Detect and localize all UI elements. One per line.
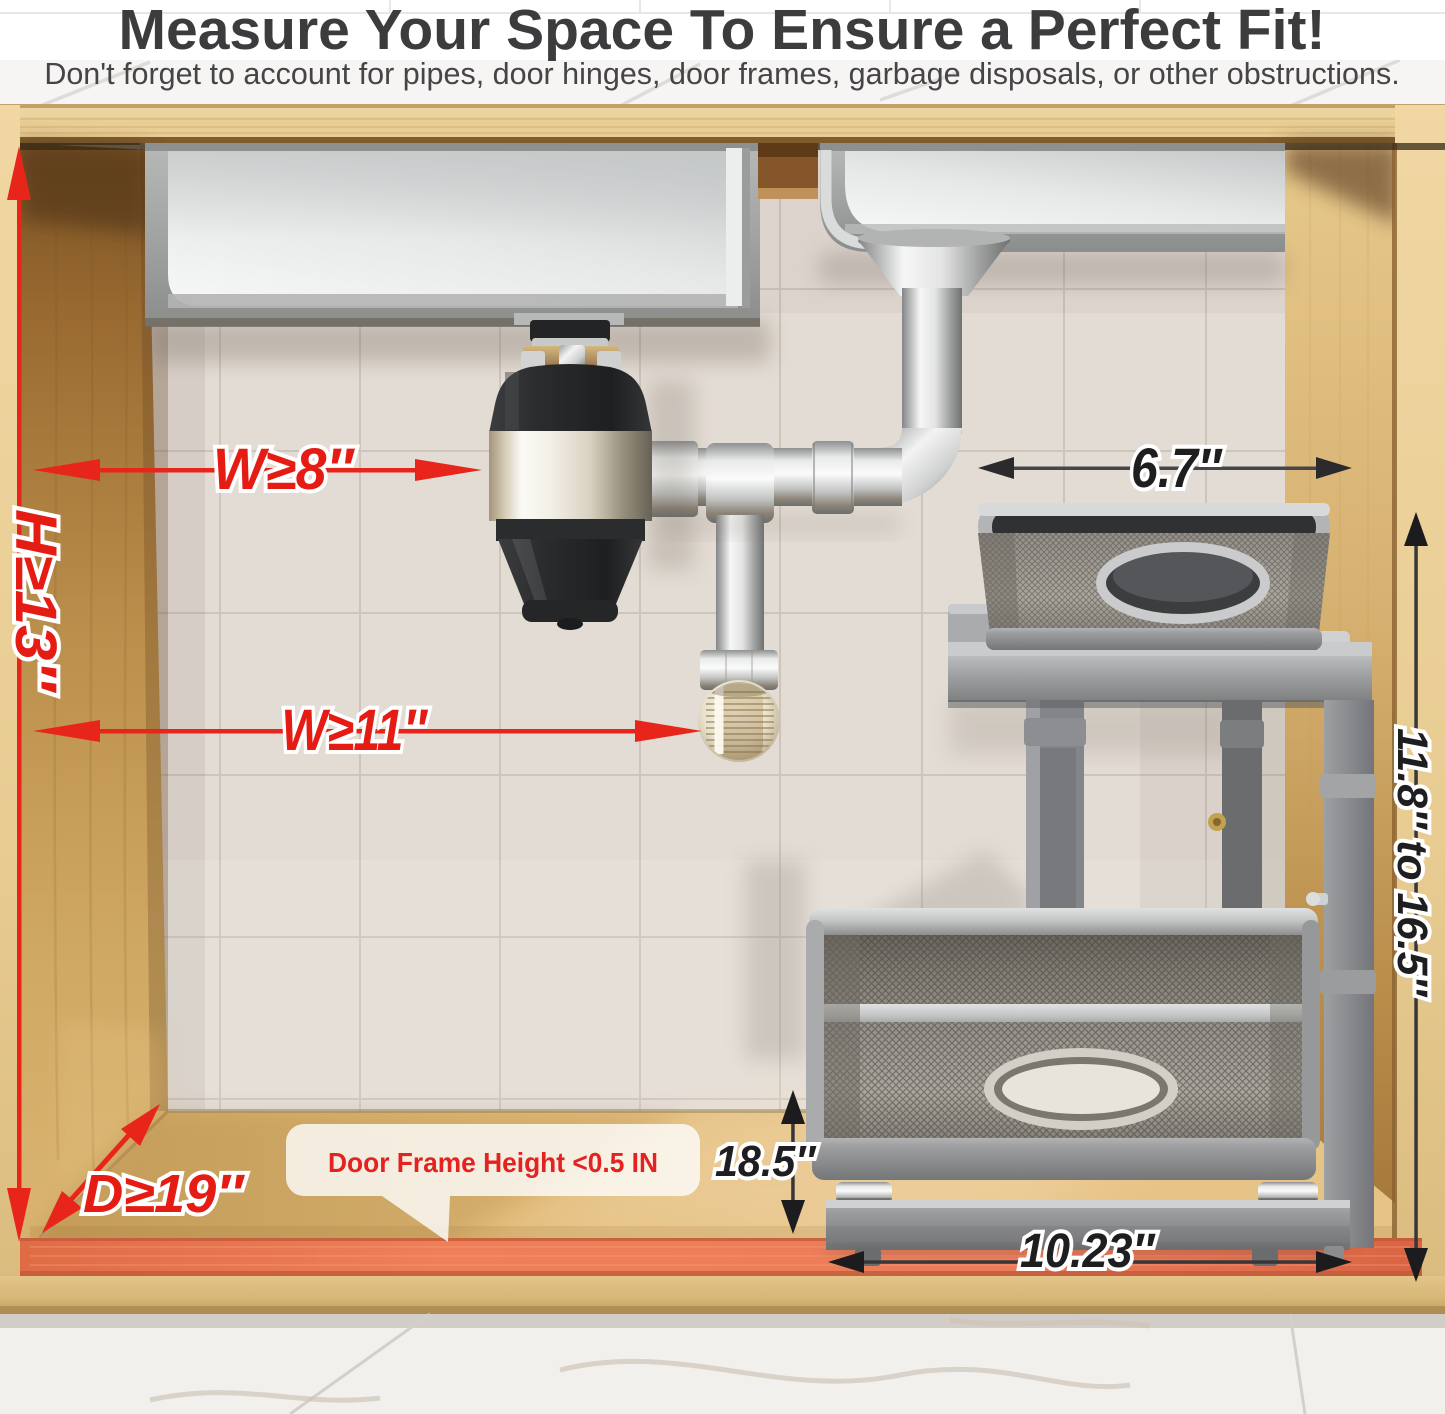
svg-text:18.5″: 18.5″ bbox=[715, 1137, 817, 1186]
svg-text:H≥13″: H≥13″ bbox=[3, 509, 68, 693]
svg-text:Don't forget to account for pi: Don't forget to account for pipes, door … bbox=[44, 57, 1399, 91]
svg-text:6.7″: 6.7″ bbox=[1131, 436, 1223, 499]
svg-text:W≥8″: W≥8″ bbox=[213, 437, 355, 502]
svg-text:10.23″: 10.23″ bbox=[1020, 1225, 1156, 1278]
svg-text:W≥11″: W≥11″ bbox=[282, 698, 429, 763]
svg-text:Measure Your Space To Ensure a: Measure Your Space To Ensure a Perfect F… bbox=[119, 0, 1326, 62]
svg-text:D≥19″: D≥19″ bbox=[83, 1164, 245, 1224]
svg-text:11.8″ to 16.5″: 11.8″ to 16.5″ bbox=[1388, 728, 1436, 998]
svg-text:Door Frame Height <0.5 IN: Door Frame Height <0.5 IN bbox=[328, 1147, 658, 1178]
